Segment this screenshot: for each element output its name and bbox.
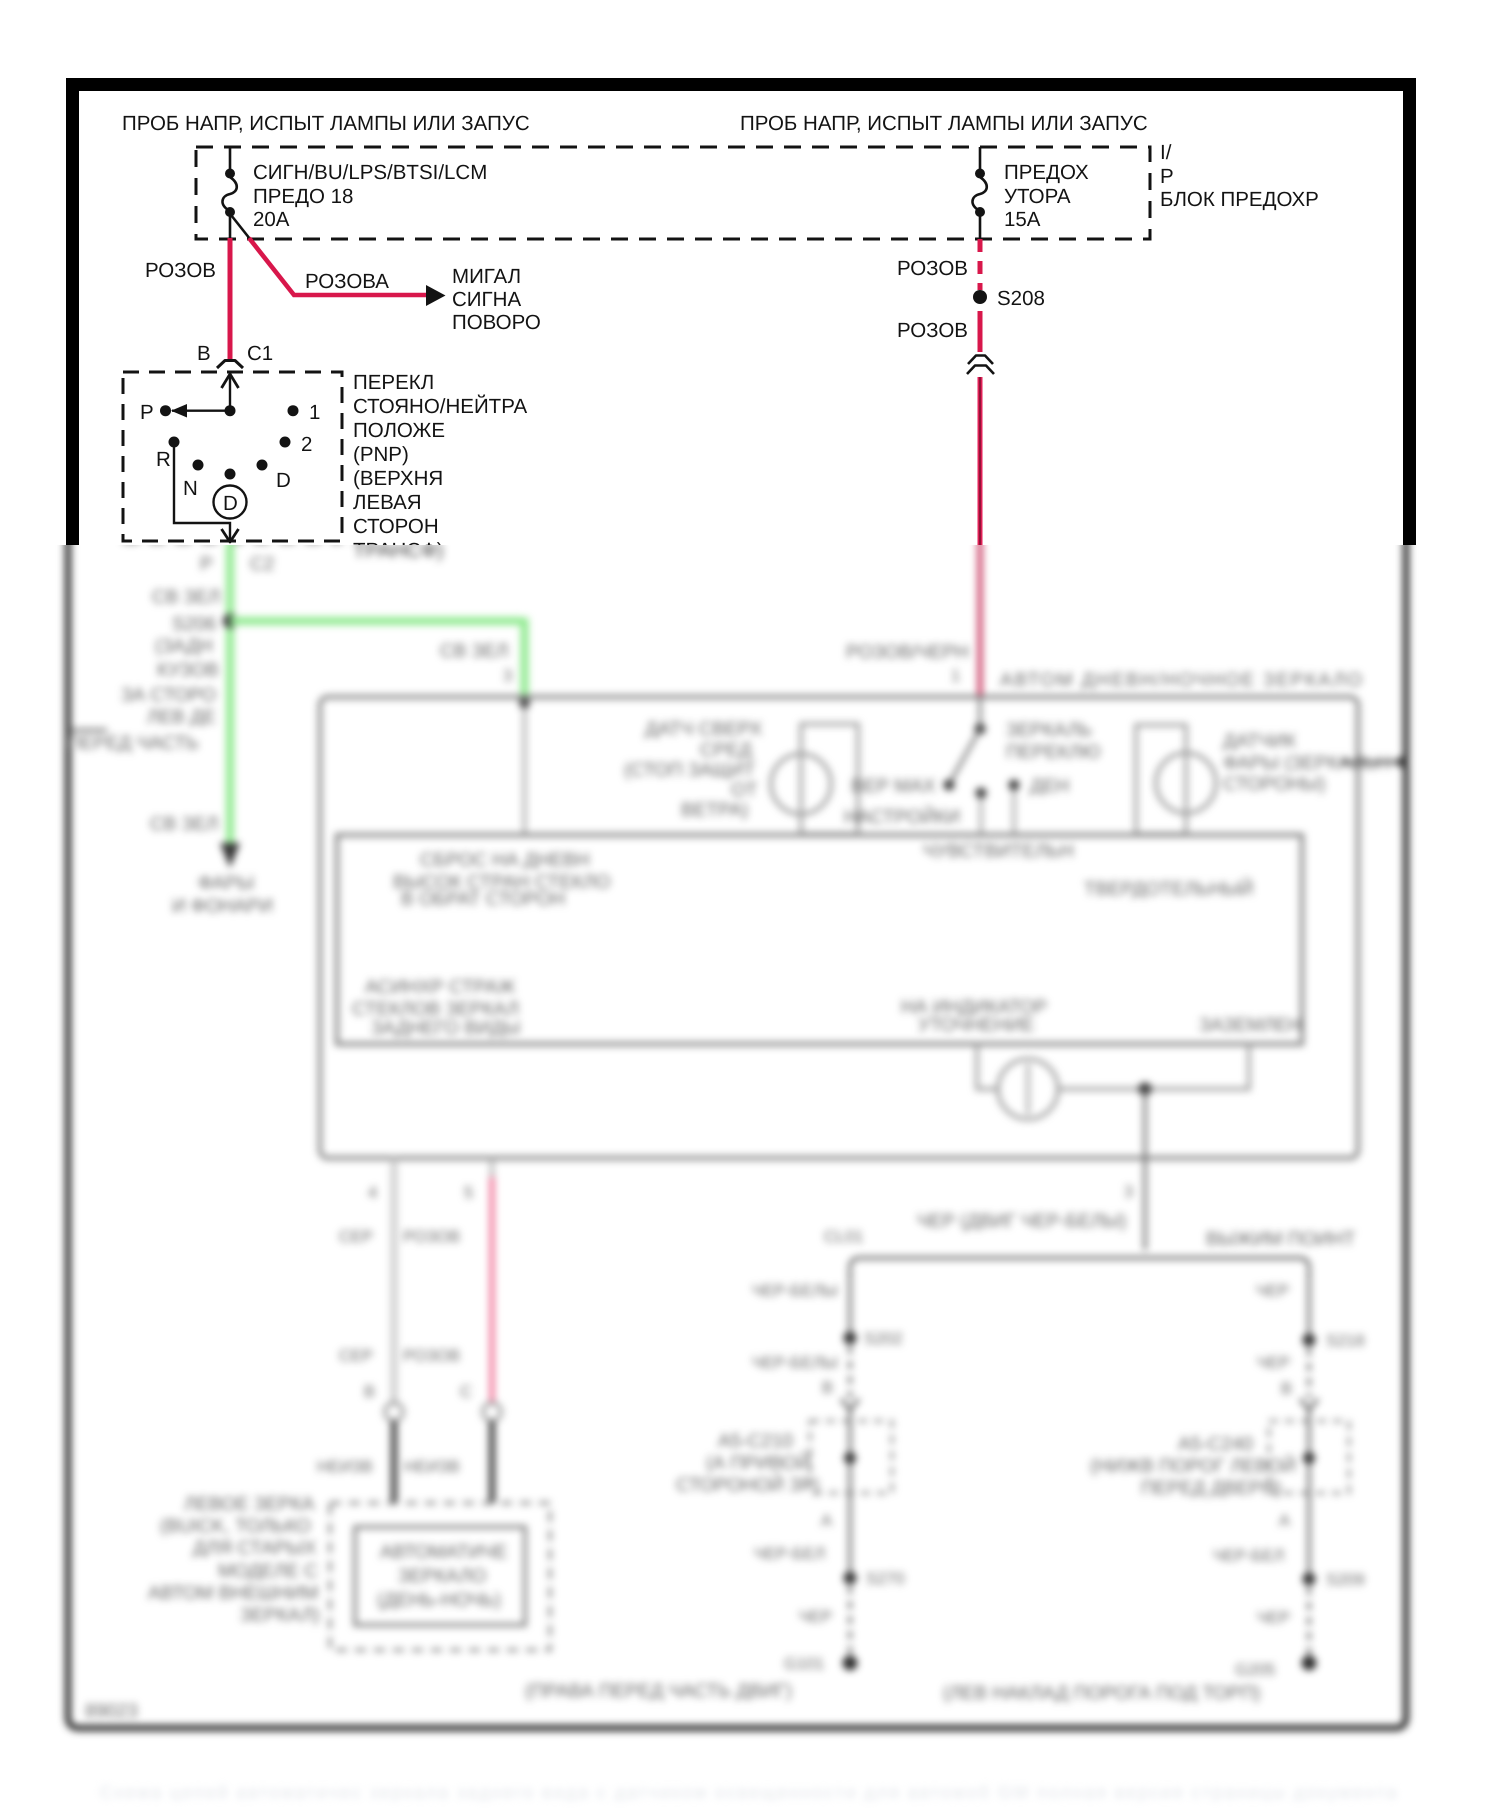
svg-text:D: D xyxy=(276,469,291,492)
svg-text:БЛОК ПРЕДОХР: БЛОК ПРЕДОХР xyxy=(1160,188,1319,211)
svg-text:1: 1 xyxy=(309,401,320,424)
svg-text:ПРЕДО 18: ПРЕДО 18 xyxy=(253,185,353,208)
svg-text:P: P xyxy=(140,401,154,424)
svg-text:ЛЕВАЯ: ЛЕВАЯ xyxy=(353,491,422,514)
svg-text:(ВЕРХНЯ: (ВЕРХНЯ xyxy=(353,467,443,490)
svg-text:20А: 20А xyxy=(253,208,290,231)
svg-text:В: В xyxy=(197,342,211,365)
svg-text:ПРОБ НАПР, ИСПЫТ ЛАМПЫ ИЛИ ЗАП: ПРОБ НАПР, ИСПЫТ ЛАМПЫ ИЛИ ЗАПУС xyxy=(122,112,530,135)
svg-text:D: D xyxy=(223,492,238,515)
svg-text:15А: 15А xyxy=(1004,208,1041,231)
svg-text:S208: S208 xyxy=(997,287,1045,310)
svg-text:Р: Р xyxy=(1160,165,1174,188)
svg-text:СТОЯНО/НЕЙТРА: СТОЯНО/НЕЙТРА xyxy=(353,394,528,418)
svg-text:СИГН/BU/LPS/BTSI/LCM: СИГН/BU/LPS/BTSI/LCM xyxy=(253,161,487,184)
svg-text:2: 2 xyxy=(301,433,312,456)
svg-text:РОЗОВ: РОЗОВ xyxy=(145,259,216,282)
svg-text:СТОРОН: СТОРОН xyxy=(353,515,439,538)
svg-text:ПЕРЕКЛ: ПЕРЕКЛ xyxy=(353,371,434,394)
svg-text:МИГАЛ: МИГАЛ xyxy=(452,265,521,288)
svg-text:ПРЕДОХ: ПРЕДОХ xyxy=(1004,161,1089,184)
svg-text:R: R xyxy=(156,448,171,471)
svg-text:РОЗОВ: РОЗОВ xyxy=(897,319,968,342)
svg-text:N: N xyxy=(183,477,198,500)
svg-text:УТОРА: УТОРА xyxy=(1004,185,1071,208)
svg-text:ПОВОРО: ПОВОРО xyxy=(452,311,541,334)
svg-text:(PNP): (PNP) xyxy=(353,443,409,466)
svg-text:РОЗОВ: РОЗОВ xyxy=(897,257,968,280)
svg-text:ПРОБ НАПР, ИСПЫТ ЛАМПЫ ИЛИ ЗАП: ПРОБ НАПР, ИСПЫТ ЛАМПЫ ИЛИ ЗАПУС xyxy=(740,112,1148,135)
svg-text:РОЗОВА: РОЗОВА xyxy=(305,270,389,293)
svg-text:С1: С1 xyxy=(247,342,273,365)
svg-text:I/: I/ xyxy=(1160,141,1172,164)
svg-text:СИГНА: СИГНА xyxy=(452,288,521,311)
svg-text:ПОЛОЖЕ: ПОЛОЖЕ xyxy=(353,419,445,442)
